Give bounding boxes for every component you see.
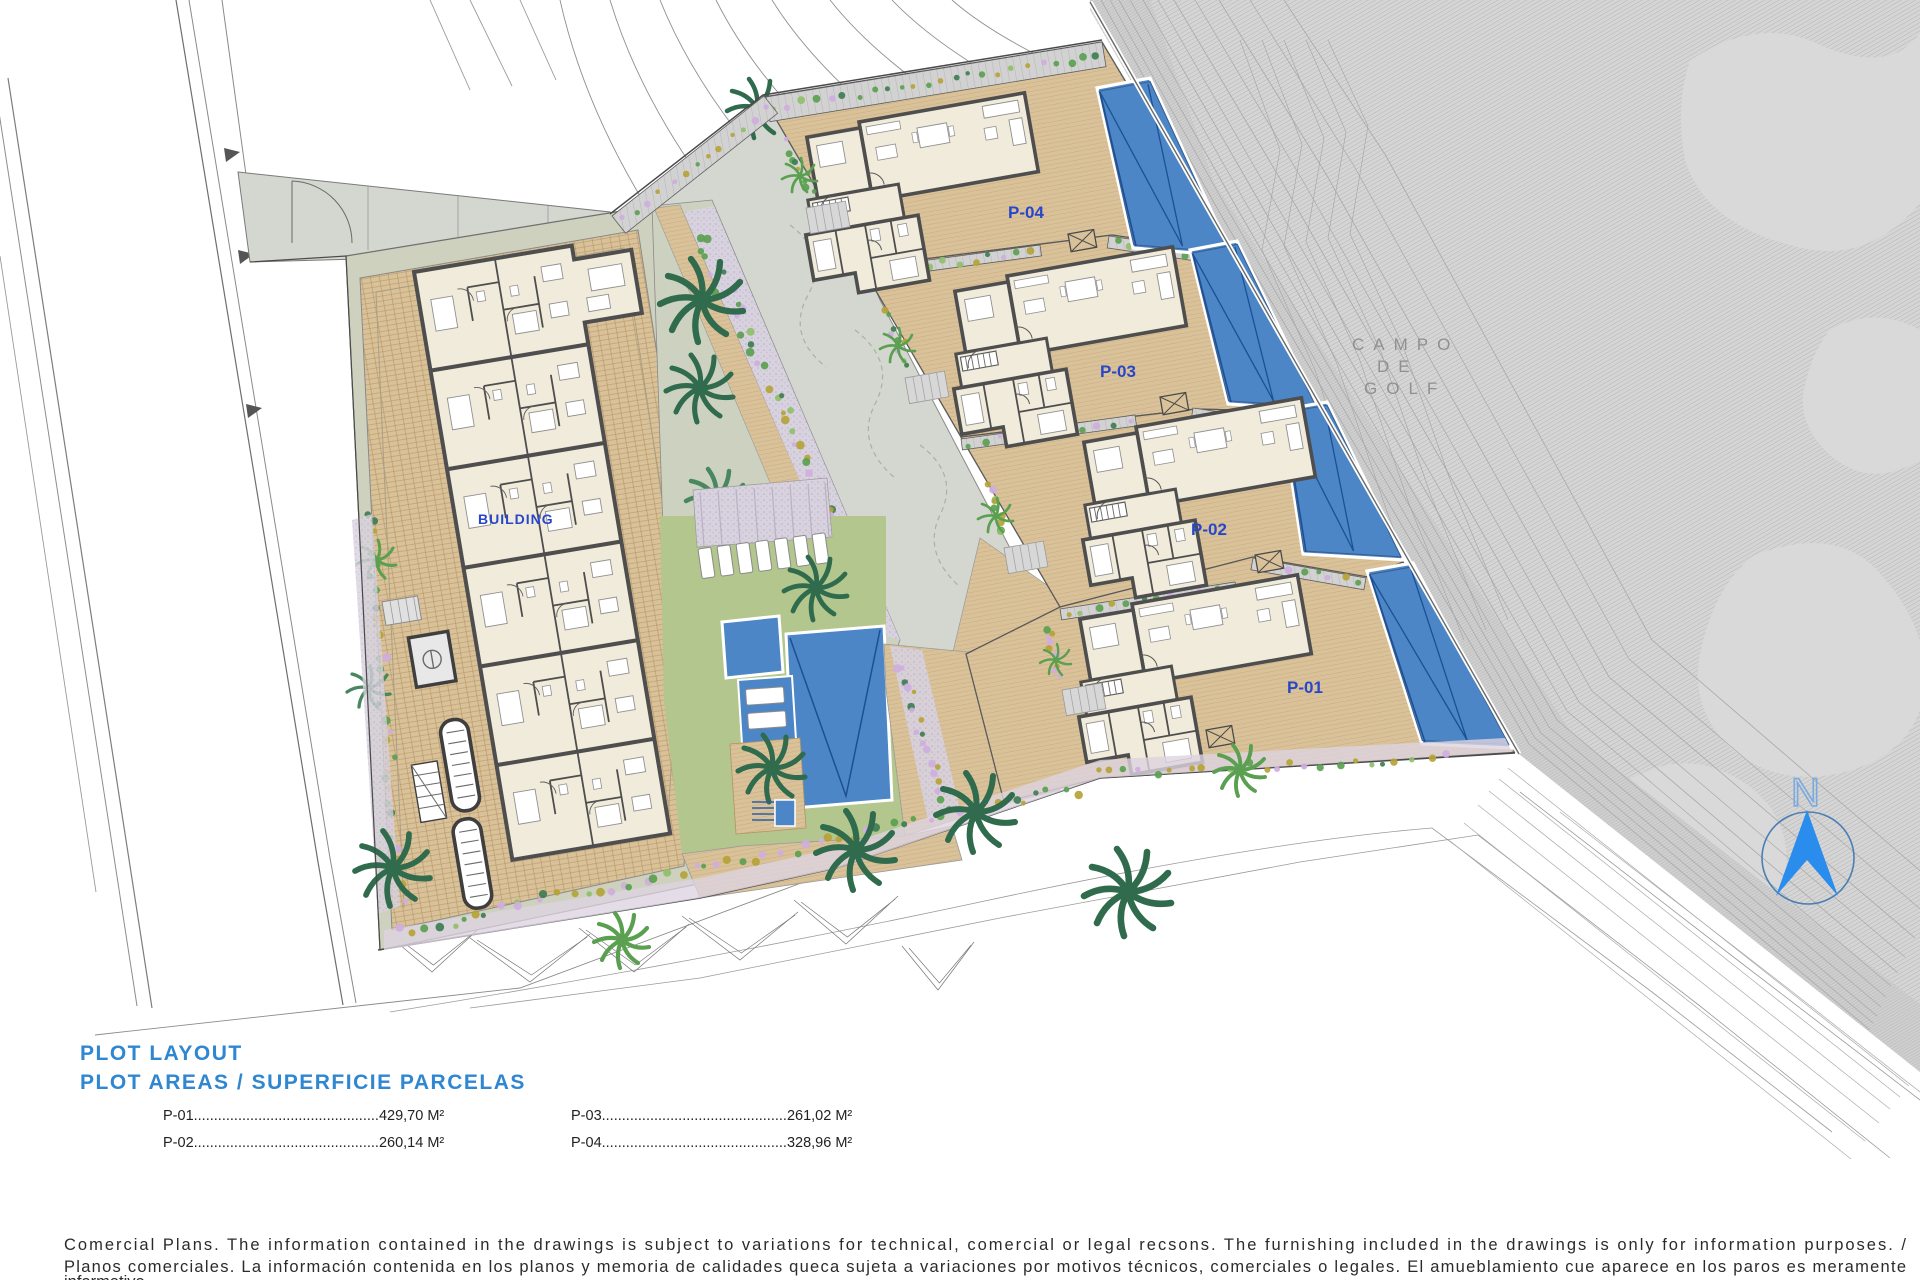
svg-text:DE: DE bbox=[1377, 357, 1419, 376]
svg-text:informativo.: informativo. bbox=[64, 1273, 149, 1280]
svg-text:P-03..........................: P-03....................................… bbox=[571, 1108, 852, 1124]
svg-text:P-01: P-01 bbox=[1287, 678, 1323, 697]
svg-text:P-04..........................: P-04....................................… bbox=[571, 1135, 852, 1151]
svg-text:N: N bbox=[1791, 771, 1820, 815]
svg-text:P-02..........................: P-02....................................… bbox=[163, 1135, 444, 1151]
svg-text:Comercial Plans. The informati: Comercial Plans. The information contain… bbox=[64, 1236, 1906, 1254]
svg-text:GOLF: GOLF bbox=[1364, 379, 1446, 398]
svg-text:P-01..........................: P-01....................................… bbox=[163, 1108, 444, 1124]
svg-text:PLOT LAYOUT: PLOT LAYOUT bbox=[80, 1042, 243, 1065]
svg-text:CAMPO: CAMPO bbox=[1352, 335, 1459, 354]
svg-text:P-04: P-04 bbox=[1008, 203, 1044, 222]
svg-text:PLOT AREAS / SUPERFICIE PARCEL: PLOT AREAS / SUPERFICIE PARCELAS bbox=[80, 1071, 526, 1094]
svg-text:BUILDING: BUILDING bbox=[478, 511, 554, 527]
svg-text:P-03: P-03 bbox=[1100, 362, 1136, 381]
svg-text:P-02: P-02 bbox=[1191, 520, 1227, 539]
